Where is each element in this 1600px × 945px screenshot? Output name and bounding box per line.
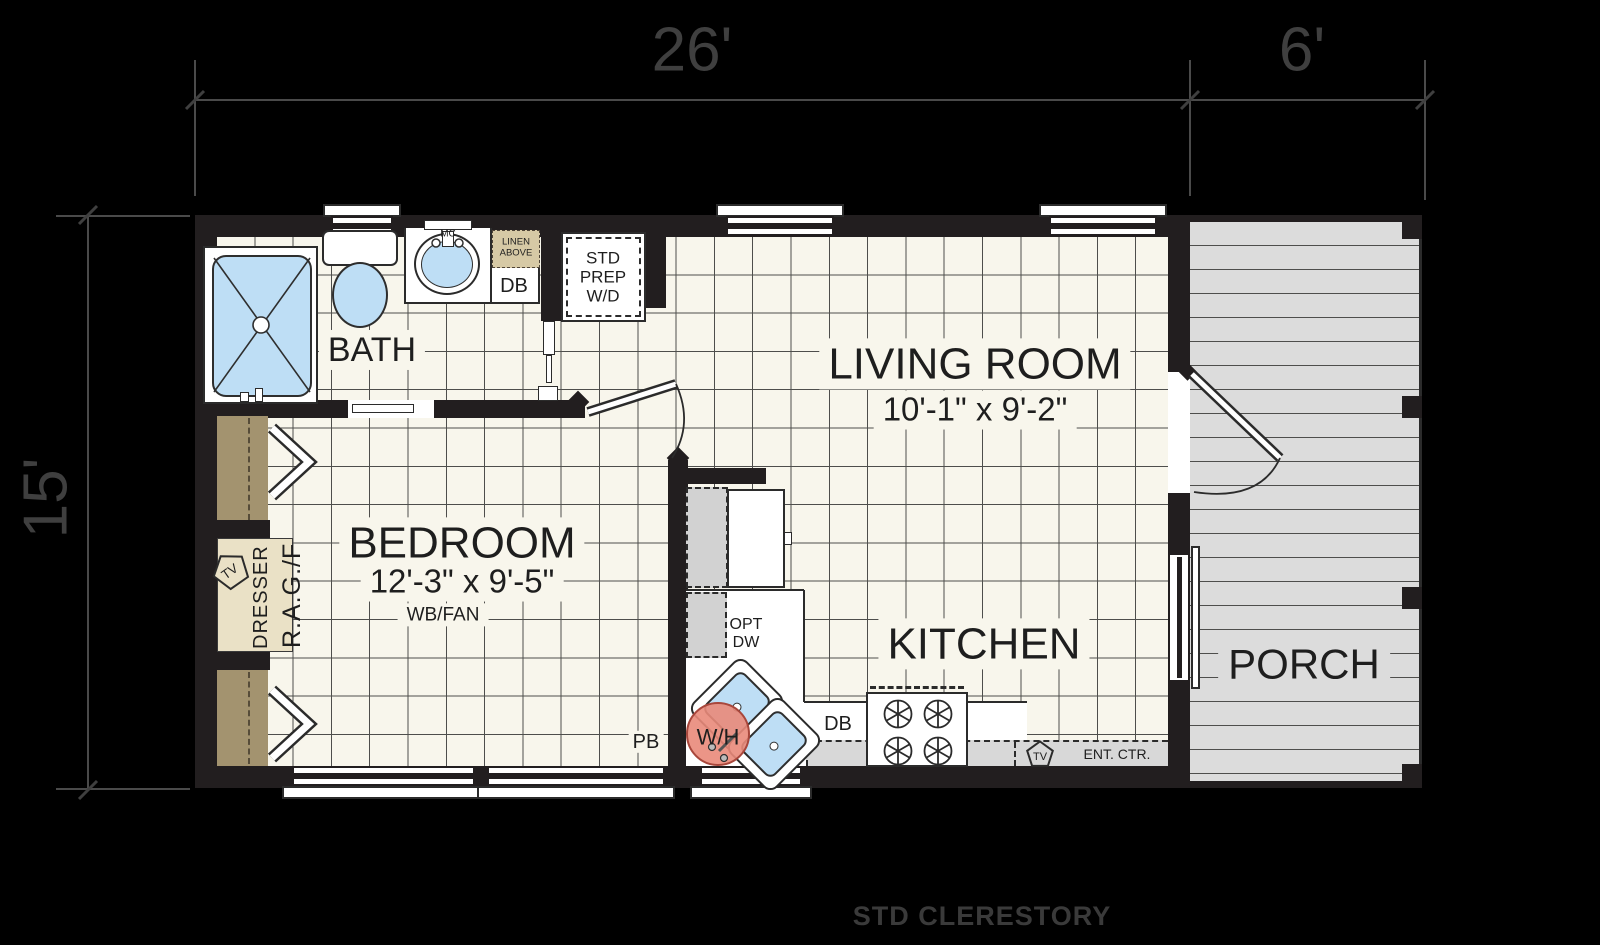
- bedroom-size: 12'-3" x 9'-5": [361, 563, 564, 602]
- dresser-label: DRESSER: [250, 543, 272, 651]
- entry-door: [588, 384, 684, 458]
- water-heater-label: W/H: [697, 726, 740, 751]
- range-hookup-label: R.A.G./F: [278, 537, 306, 653]
- pb-label: PB: [629, 731, 664, 753]
- ent-tv-label: TV: [1033, 751, 1047, 763]
- kitchen-db-label: DB: [824, 713, 852, 735]
- floor-plan-canvas: 26' 6' 15' BATH MC LINEN ABOVE DB STD PR…: [0, 0, 1600, 945]
- living-room-size: 10'-1" x 9'-2": [874, 391, 1077, 430]
- bath-label: BATH: [319, 330, 425, 370]
- living-room-label: LIVING ROOM: [819, 338, 1130, 389]
- shower-drain: [253, 317, 269, 333]
- porch-door: [1192, 374, 1280, 494]
- bath-db-label: DB: [500, 275, 528, 297]
- bedroom-note: WB/FAN: [398, 603, 489, 626]
- plan-footer-label: STD CLERESTORY: [853, 901, 1112, 931]
- porch-label: PORCH: [1218, 639, 1390, 688]
- mc-label: MC: [440, 228, 456, 239]
- dim-overall-width: 26': [652, 15, 733, 86]
- dim-overall-depth: 15': [11, 458, 82, 539]
- lav-faucet-handles: [432, 239, 463, 247]
- kitchen-label: KITCHEN: [878, 618, 1089, 669]
- stove-burners: [885, 701, 952, 765]
- washer-dryer-label: STD PREP W/D: [576, 248, 630, 305]
- bedroom-label: BEDROOM: [339, 517, 584, 568]
- linen-label: LINEN ABOVE: [494, 237, 538, 258]
- dim-porch-width: 6': [1279, 15, 1325, 86]
- ent-center-label: ENT. CTR.: [1084, 747, 1151, 763]
- opt-dw-label: OPT DW: [726, 616, 766, 652]
- plan-linework: [0, 0, 1600, 945]
